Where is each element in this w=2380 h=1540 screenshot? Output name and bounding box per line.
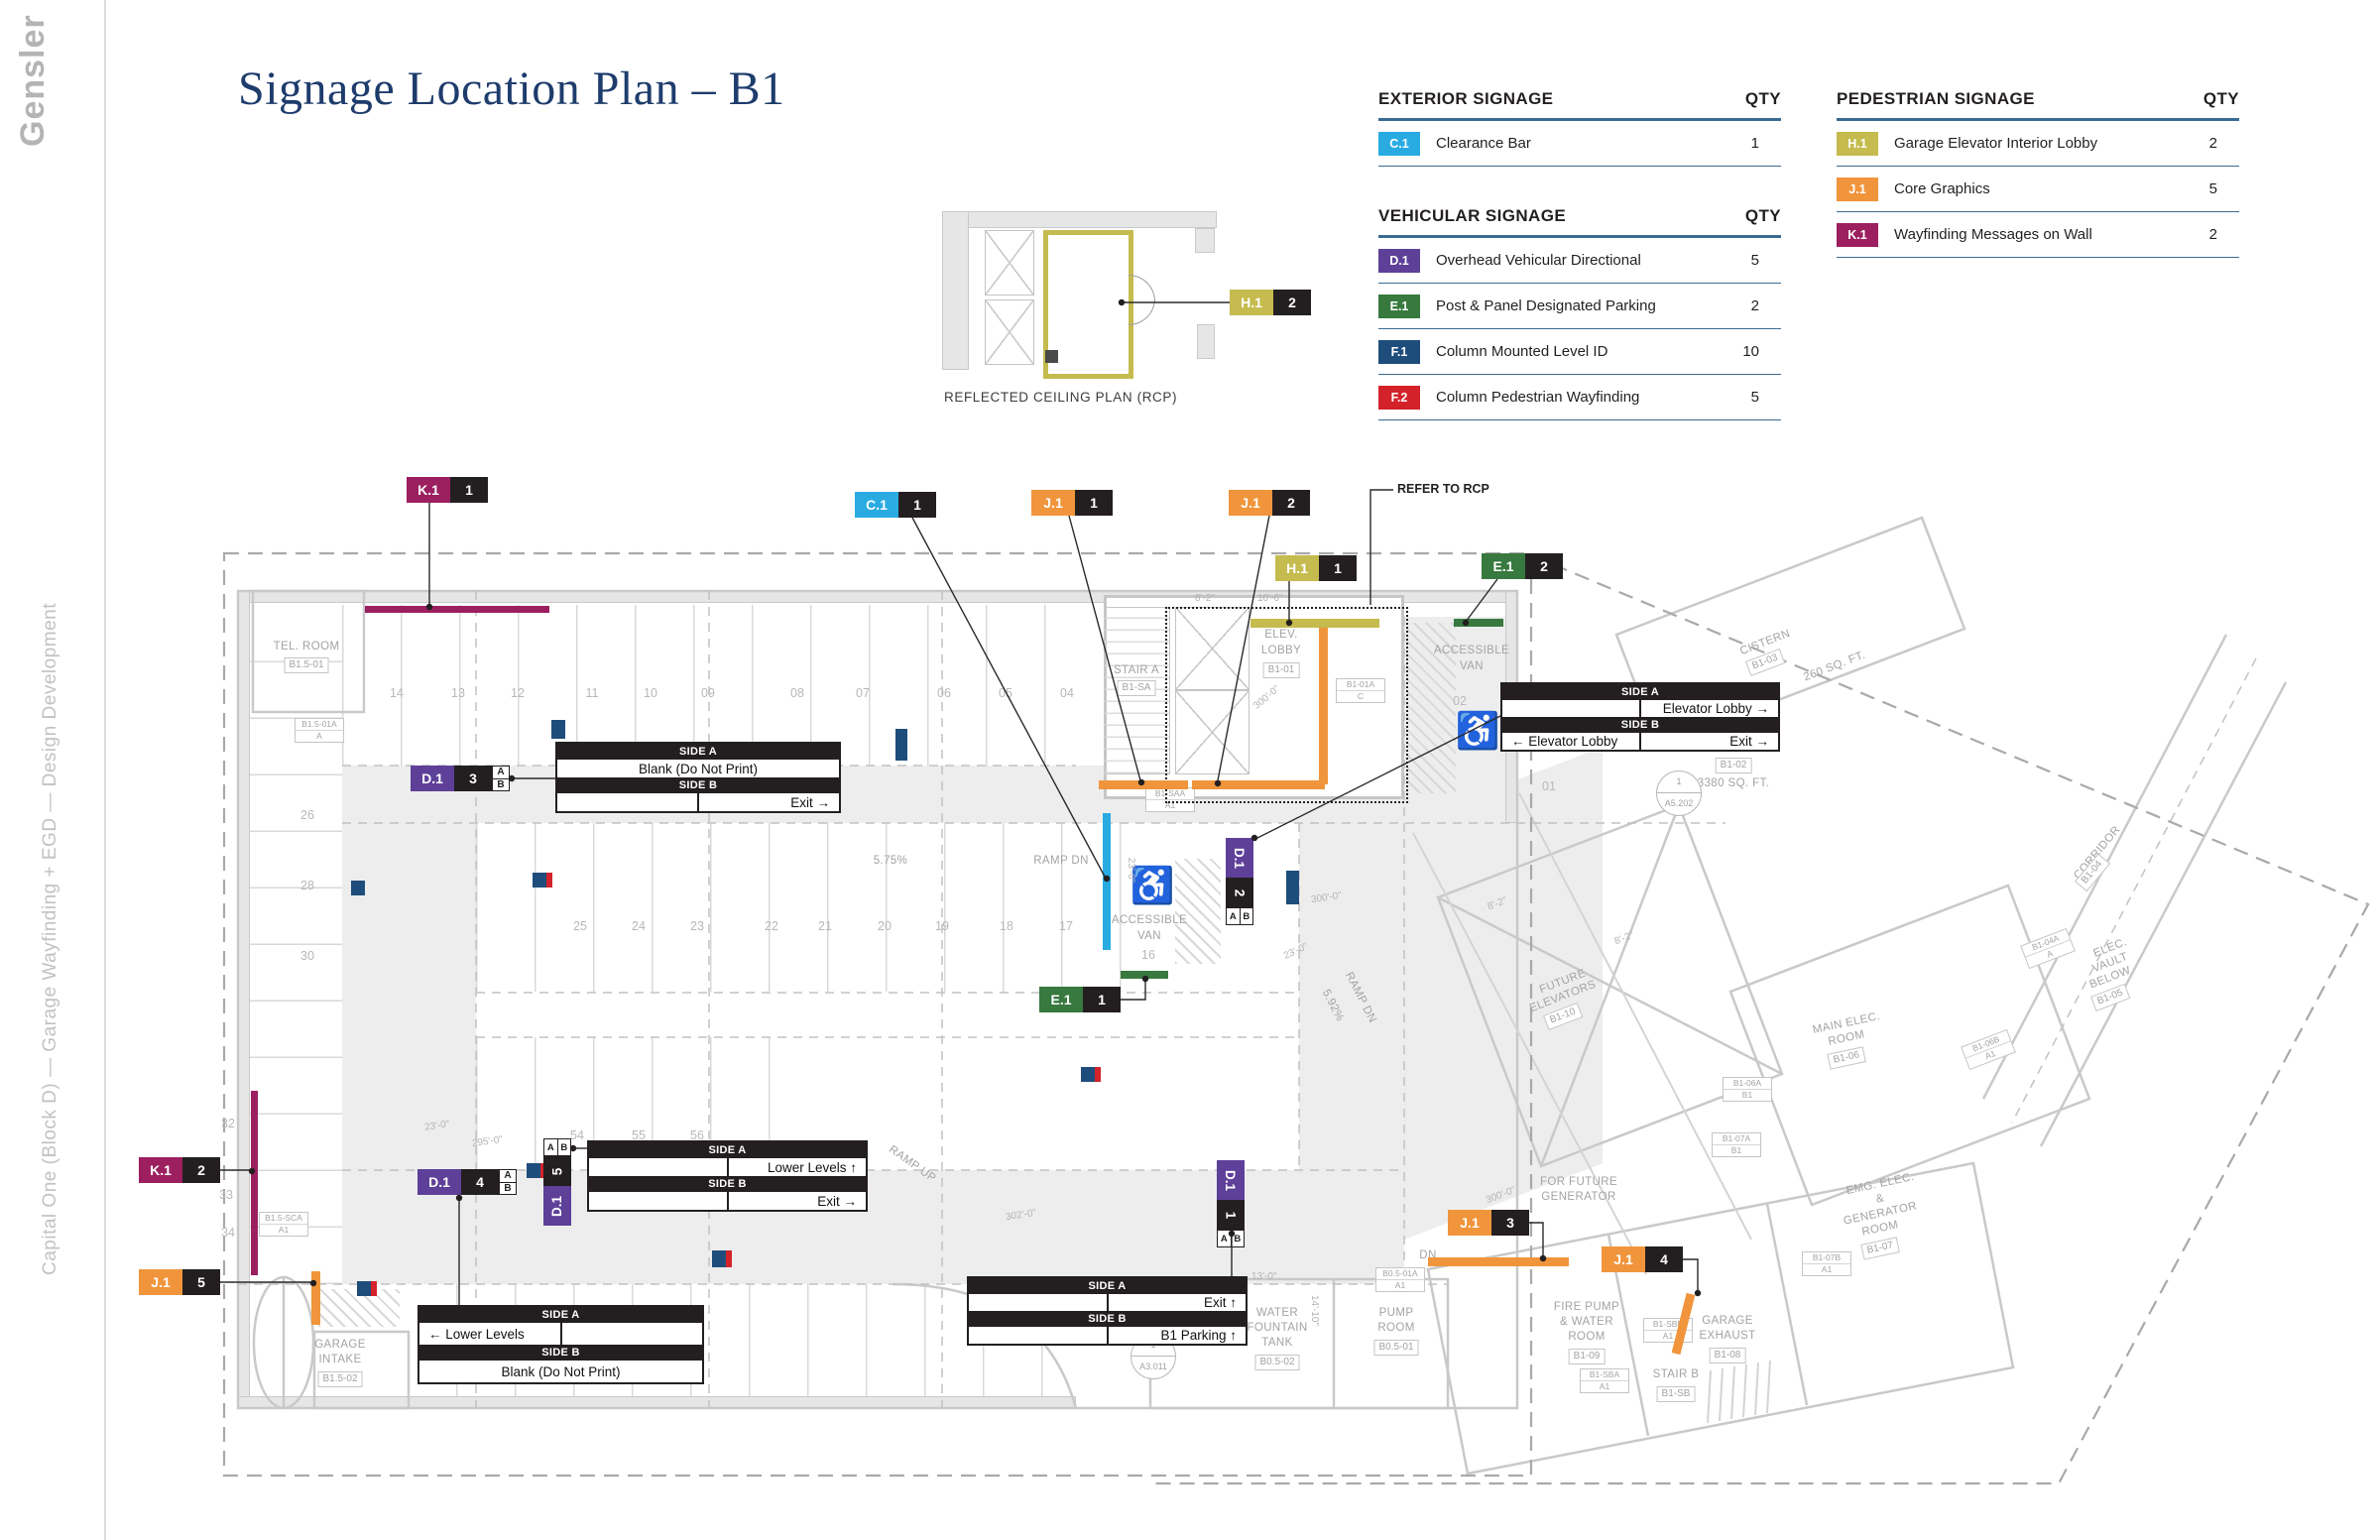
code-chip: E.1 <box>1378 295 1420 318</box>
stall-number: 30 <box>292 949 323 963</box>
code-chip: H.1 <box>1837 132 1878 156</box>
drive-aisle <box>1299 823 1404 1170</box>
room-id: B1.5-01 <box>284 657 328 673</box>
legend-qty-header: QTY <box>2203 89 2239 109</box>
wall <box>238 1396 1076 1408</box>
code-chip: F.2 <box>1378 386 1420 410</box>
dimension: 14'-10" <box>1309 1295 1320 1326</box>
room-label: STAIR A <box>1114 664 1159 676</box>
stall-number: 28 <box>292 879 323 892</box>
tag-k1-2: K.12 <box>139 1157 220 1183</box>
column-wayfinding-f1-f2 <box>1081 1067 1101 1082</box>
dimension: 13'-0" <box>1251 1271 1276 1282</box>
rcp-wall <box>942 211 1217 228</box>
stall-number: 32 <box>212 1117 244 1130</box>
tag-j1-2: J.12 <box>1229 490 1310 516</box>
tag-h1-2-rcp: H.12 <box>1230 290 1311 315</box>
tag-j1-4: J.14 <box>1602 1246 1683 1272</box>
sign-panel-d1-5: SIDE A Lower Levels ↑ SIDE B Exit → <box>587 1140 868 1212</box>
core-graphic-j1 <box>1428 1257 1569 1266</box>
stall-number: 22 <box>756 919 787 933</box>
column-level-id-f1 <box>1286 871 1299 904</box>
tag-e1-1: E.11 <box>1039 987 1121 1012</box>
tag-c1-1: C.11 <box>855 492 936 518</box>
room-id: B1-SB <box>1657 1386 1696 1402</box>
project-strip: Capital One (Block D) — Garage Wayfindin… <box>40 603 61 1275</box>
ref-hex: B1-SBAA1 <box>1580 1368 1629 1393</box>
legend-row: F.2 Column Pedestrian Wayfinding 5 <box>1378 375 1781 420</box>
room-label: STAIR B <box>1653 1368 1700 1380</box>
dimension: 10'-6" <box>1257 593 1282 604</box>
room-label: FIRE PUMP <box>1554 1301 1619 1313</box>
stall-number: 34 <box>212 1226 244 1240</box>
room-label: VAN <box>1137 930 1161 942</box>
room-id: B1-09 <box>1569 1349 1606 1364</box>
core-graphic-j1 <box>1192 780 1325 789</box>
legend-title: VEHICULAR SIGNAGE <box>1378 206 1566 226</box>
room-id: B1-06 <box>1827 1046 1865 1069</box>
legend-row: J.1 Core Graphics 5 <box>1837 167 2239 212</box>
room-label: TANK <box>1261 1337 1292 1349</box>
tag-d1-4: D.14 AB <box>417 1169 517 1195</box>
elevator-shaft <box>985 230 1034 296</box>
post-panel-e1 <box>1121 971 1168 979</box>
rcp-sign-location <box>1045 350 1058 363</box>
sign-panel-d1-1: SIDE A Exit ↑ SIDE B B1 Parking ↑ <box>967 1276 1248 1346</box>
tag-d1-2: D.1 2 AB <box>1226 838 1253 925</box>
area-label: 3380 SQ. FT. <box>1698 777 1770 789</box>
ref-hex: B0.5-01AA1 <box>1375 1267 1425 1292</box>
room-label: GARAGE <box>314 1339 366 1351</box>
stall-number: 12 <box>502 686 534 700</box>
stall-number: 01 <box>1533 779 1565 793</box>
ref-hex: B1-06BA1 <box>1961 1029 2016 1070</box>
room-id: B0.5-01 <box>1373 1340 1418 1356</box>
rcp-wall <box>1197 324 1215 359</box>
legend-qty-header: QTY <box>1745 206 1781 226</box>
tag-j1-1: J.11 <box>1031 490 1113 516</box>
hatch-area <box>1175 859 1221 964</box>
area-label: 260 SQ. FT. <box>1802 650 1867 684</box>
wheelchair-icon: ♿ <box>1456 710 1500 752</box>
sign-panel-d1-3: SIDE A Blank (Do Not Print) SIDE B Exit … <box>555 742 841 813</box>
code-chip: K.1 <box>1837 223 1878 247</box>
stall-number: 10 <box>635 686 666 700</box>
room-label: GENERATOR <box>1541 1191 1615 1203</box>
code-chip: F.1 <box>1378 340 1420 364</box>
side-ab: AB <box>1226 907 1253 925</box>
tag-h1-1: H.11 <box>1275 555 1357 581</box>
legend-row: E.1 Post & Panel Designated Parking 2 <box>1378 284 1781 329</box>
ref-hex: B1-07BA1 <box>1802 1251 1851 1276</box>
dimension: 8'-2" <box>1195 593 1215 604</box>
column-level-id-f1 <box>351 881 365 895</box>
room-label: INTAKE <box>318 1354 361 1365</box>
rcp-reference-box <box>1165 607 1408 803</box>
stall-number: 25 <box>564 919 596 933</box>
core-graphic-j1 <box>1099 780 1188 789</box>
ref-hex: B1.5-01AA <box>295 718 344 743</box>
side-ab: AB <box>543 1138 571 1156</box>
room-id: B0.5-02 <box>1254 1355 1299 1370</box>
stall-number: 09 <box>692 686 724 700</box>
tag-j1-5: J.15 <box>139 1269 220 1295</box>
column-wayfinding-f1-f2 <box>357 1281 377 1296</box>
tag-j1-3: J.13 <box>1448 1210 1529 1236</box>
side-ab: AB <box>492 766 510 791</box>
room-label: EXHAUST <box>1699 1330 1755 1342</box>
stall-number: 19 <box>926 919 958 933</box>
legend-row: C.1 Clearance Bar 1 <box>1378 121 1781 167</box>
elevator-lobby-graphic-h1 <box>1250 619 1379 628</box>
column-level-id-f1 <box>895 729 907 761</box>
wall-graphic-k1 <box>365 606 549 613</box>
room-label: & <box>1875 1192 1885 1205</box>
detail-callout: 1A5.202 <box>1656 770 1702 816</box>
stall-number: 23 <box>681 919 713 933</box>
legend-title: EXTERIOR SIGNAGE <box>1378 89 1553 109</box>
stall-number: 20 <box>869 919 900 933</box>
stall-number: 05 <box>990 686 1021 700</box>
room-label: PUMP <box>1379 1307 1414 1319</box>
ref-hex: B1-04AA <box>2020 928 2076 969</box>
wall <box>238 591 250 1408</box>
room-label: FOR FUTURE <box>1540 1176 1617 1188</box>
stall-number: 21 <box>809 919 841 933</box>
rcp-wall <box>1195 228 1215 253</box>
door-swing <box>1129 298 1155 325</box>
stall-number: 26 <box>292 808 323 822</box>
stall-number: 13 <box>442 686 474 700</box>
stall-number: 16 <box>1132 948 1164 962</box>
legend-title: PEDESTRIAN SIGNAGE <box>1837 89 2035 109</box>
room-id: B1-08 <box>1710 1348 1746 1363</box>
stall-number: 24 <box>623 919 654 933</box>
wheelchair-icon: ♿ <box>1130 865 1175 906</box>
room-id: B1.5-02 <box>317 1371 362 1387</box>
room-label: VAN <box>1460 660 1484 672</box>
wall-graphic-k1 <box>251 1091 258 1275</box>
core-graphic-j1 <box>1319 628 1328 784</box>
code-chip: D.1 <box>1378 249 1420 273</box>
room-label: ACCESSIBLE <box>1112 914 1187 926</box>
room-label: WATER <box>1256 1307 1298 1319</box>
stall-number: 08 <box>781 686 813 700</box>
room-label: & WATER <box>1560 1316 1613 1328</box>
ref-hex: B1.5-SCAA1 <box>259 1212 308 1237</box>
frame-divider <box>104 0 106 1540</box>
room-label: ROOM <box>1377 1322 1414 1334</box>
legend-qty-header: QTY <box>1745 89 1781 109</box>
parking-stalls <box>476 823 1176 992</box>
stall-number: 33 <box>210 1188 242 1202</box>
tag-k1-1: K.11 <box>407 477 488 503</box>
dimension: 8'-2" <box>1613 930 1636 947</box>
room-id: B1-02 <box>1716 758 1752 773</box>
slope-label: 5.75% <box>874 855 908 867</box>
tag-d1-3: D.13 AB <box>411 766 510 791</box>
elevator-shaft <box>985 299 1034 365</box>
room-label: FOUNTAIN <box>1247 1322 1307 1334</box>
column-wayfinding-f1-f2 <box>712 1250 732 1267</box>
core-graphic-j1 <box>311 1271 320 1325</box>
rcp-caption: REFLECTED CEILING PLAN (RCP) <box>944 390 1177 405</box>
door-swing <box>1129 275 1155 301</box>
column-level-id-f1 <box>551 720 565 739</box>
sign-panel-d1-2: SIDE A Elevator Lobby → SIDE B ← Elevato… <box>1500 682 1780 752</box>
code-chip: J.1 <box>1837 178 1878 201</box>
legend-vehicular: VEHICULAR SIGNAGEQTY D.1 Overhead Vehicu… <box>1378 206 1781 420</box>
legend-exterior: EXTERIOR SIGNAGEQTY C.1 Clearance Bar 1 <box>1378 89 1781 167</box>
ref-hex: B1-06AB1 <box>1723 1077 1772 1102</box>
stall-number: 07 <box>847 686 879 700</box>
clearance-bar-c1 <box>1103 813 1111 950</box>
post-panel-e1 <box>1454 619 1503 627</box>
stall-number: 18 <box>991 919 1022 933</box>
side-ab: AB <box>1217 1230 1245 1247</box>
page-title: Signage Location Plan – B1 <box>238 61 785 116</box>
stall-number: 06 <box>928 686 960 700</box>
room-id: B1-07 <box>1860 1237 1899 1259</box>
legend-row: D.1 Overhead Vehicular Directional 5 <box>1378 238 1781 284</box>
tag-e1-2: E.12 <box>1482 553 1563 579</box>
stall-number: 17 <box>1050 919 1082 933</box>
legend-row: K.1 Wayfinding Messages on Wall 2 <box>1837 212 2239 258</box>
dimension: 23'-0" <box>1126 858 1136 883</box>
tag-d1-5: AB 5 D.1 <box>543 1138 571 1226</box>
rcp-wall <box>942 211 969 370</box>
room-label: ACCESSIBLE <box>1434 645 1509 656</box>
sheet: Gensler Capital One (Block D) — Garage W… <box>0 0 2380 1540</box>
stall-number: 11 <box>576 686 608 700</box>
tag-d1-1: D.1 1 AB <box>1217 1160 1245 1247</box>
sign-panel-d1-4: SIDE A ← Lower Levels SIDE B Blank (Do N… <box>417 1305 704 1384</box>
gensler-logo: Gensler <box>14 14 53 147</box>
legend-row: F.1 Column Mounted Level ID 10 <box>1378 329 1781 375</box>
room-label: ROOM <box>1568 1331 1605 1343</box>
stall-number: 02 <box>1444 694 1476 708</box>
room-label: GARAGE <box>1702 1315 1753 1327</box>
stall-number: 14 <box>381 686 413 700</box>
room-id: B1-SA <box>1118 680 1156 696</box>
legend-row: H.1 Garage Elevator Interior Lobby 2 <box>1837 121 2239 167</box>
ref-hex: B1-07AB1 <box>1712 1132 1761 1157</box>
stall-number: 04 <box>1051 686 1083 700</box>
code-chip: C.1 <box>1378 132 1420 156</box>
column-wayfinding-f1-f2 <box>533 873 552 888</box>
legend-pedestrian: PEDESTRIAN SIGNAGEQTY H.1 Garage Elevato… <box>1837 89 2239 258</box>
refer-to-rcp-note: REFER TO RCP <box>1397 482 1489 496</box>
room-label: TEL. ROOM <box>274 641 340 652</box>
ramp-label: RAMP DN <box>1033 855 1089 867</box>
side-ab: AB <box>499 1169 517 1195</box>
